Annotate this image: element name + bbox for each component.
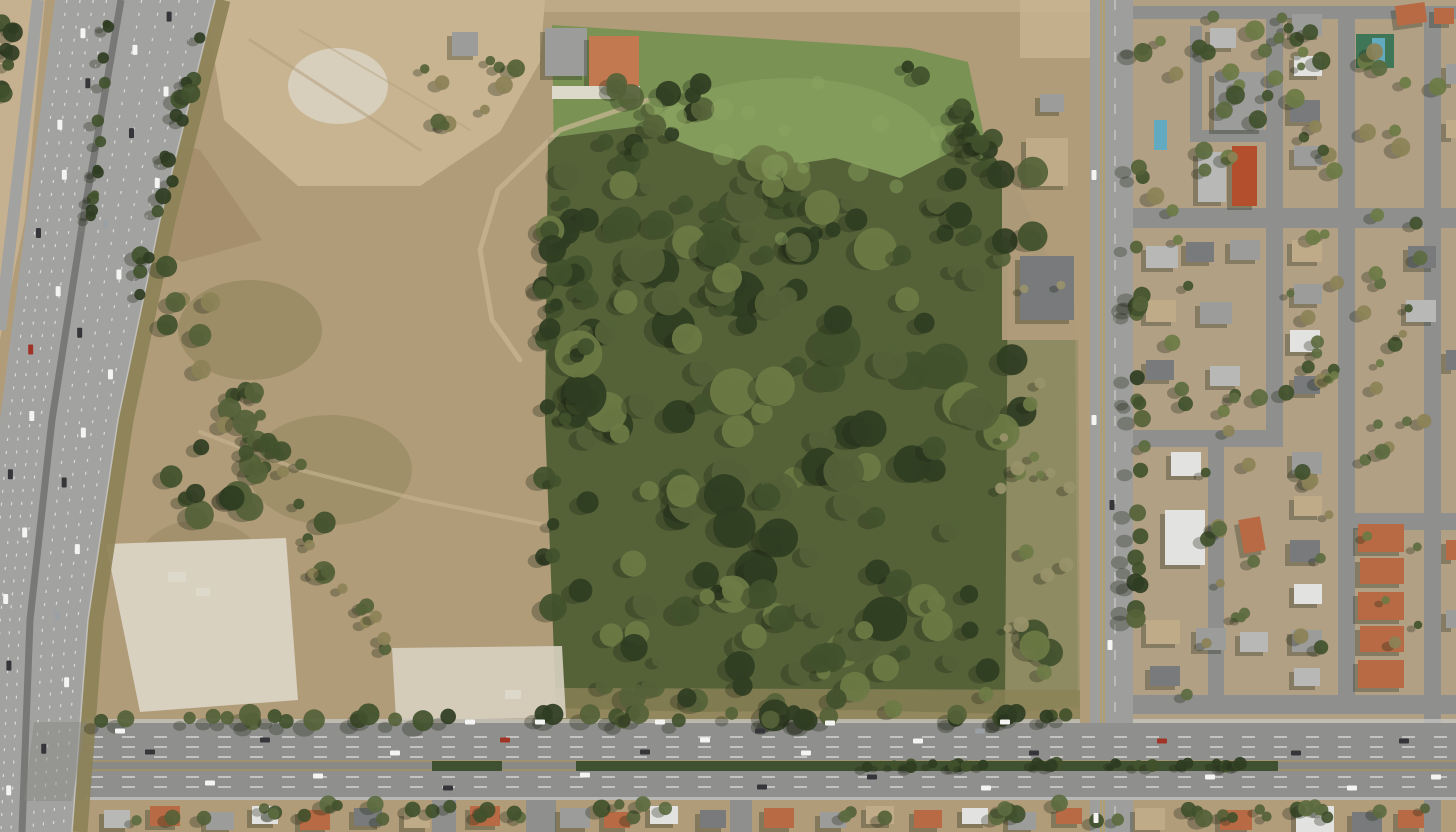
building bbox=[1171, 452, 1201, 476]
pale-pad-west bbox=[106, 538, 298, 712]
tree bbox=[1413, 542, 1422, 551]
tree bbox=[1293, 628, 1308, 643]
tree bbox=[358, 703, 380, 725]
building bbox=[1154, 120, 1167, 150]
tree-shadow bbox=[1114, 247, 1128, 257]
freeway-vehicle bbox=[62, 170, 67, 180]
building bbox=[1210, 366, 1240, 386]
boulevard-vehicle bbox=[1431, 775, 1441, 780]
tree-shadow bbox=[1113, 377, 1129, 389]
tree bbox=[539, 318, 560, 339]
tree bbox=[435, 75, 450, 90]
tree bbox=[1174, 382, 1189, 397]
tree bbox=[824, 305, 852, 333]
building bbox=[1210, 28, 1236, 48]
tree bbox=[742, 624, 767, 649]
tree-shadow bbox=[1117, 417, 1135, 431]
grass-patch bbox=[930, 125, 947, 142]
grass-patch bbox=[797, 161, 810, 174]
building bbox=[1446, 350, 1456, 370]
tree bbox=[961, 621, 978, 638]
boulevard-vehicle bbox=[1205, 775, 1215, 780]
tree bbox=[98, 52, 109, 63]
tree bbox=[947, 705, 967, 725]
grass-patch bbox=[778, 124, 790, 136]
tree bbox=[259, 433, 277, 451]
tree bbox=[95, 136, 106, 147]
tree bbox=[1183, 281, 1193, 291]
tree bbox=[1056, 281, 1065, 290]
tree bbox=[706, 201, 726, 221]
building bbox=[1040, 94, 1064, 112]
boulevard-vehicle bbox=[115, 729, 125, 734]
tree bbox=[610, 424, 629, 443]
grass-patch bbox=[711, 98, 733, 120]
grass-patch bbox=[889, 179, 903, 193]
building bbox=[1294, 584, 1322, 604]
boulevard-vehicle bbox=[1347, 786, 1357, 791]
tree bbox=[939, 517, 963, 541]
tree bbox=[1399, 77, 1411, 89]
freeway-vehicle bbox=[108, 369, 113, 379]
tree bbox=[643, 114, 667, 138]
tree bbox=[1126, 609, 1146, 629]
tree bbox=[1059, 557, 1074, 572]
tree bbox=[564, 377, 591, 404]
tree bbox=[704, 474, 745, 515]
freeway-vehicle bbox=[8, 469, 13, 479]
tree bbox=[1110, 758, 1120, 768]
tree bbox=[1389, 125, 1401, 137]
boulevard-vehicle bbox=[640, 750, 650, 755]
building bbox=[1446, 540, 1456, 560]
tree bbox=[922, 437, 946, 461]
tree bbox=[1376, 359, 1384, 367]
tree bbox=[133, 265, 147, 279]
tree bbox=[911, 66, 930, 85]
tree bbox=[545, 548, 560, 563]
tree bbox=[878, 810, 893, 825]
tree bbox=[92, 167, 104, 179]
grass-patch bbox=[775, 232, 788, 245]
tree bbox=[722, 415, 754, 447]
tree bbox=[480, 105, 490, 115]
boulevard-vehicle bbox=[465, 720, 475, 725]
tree bbox=[1020, 285, 1029, 294]
tree bbox=[754, 483, 780, 509]
freeway-vehicle bbox=[3, 594, 8, 604]
tree bbox=[946, 202, 972, 228]
tree bbox=[914, 313, 935, 334]
boulevard-vehicle bbox=[1000, 720, 1010, 725]
freeway-vehicle bbox=[75, 544, 80, 554]
tree bbox=[1370, 381, 1383, 394]
tree bbox=[1262, 90, 1274, 102]
satellite-image bbox=[0, 0, 1456, 832]
tree bbox=[1234, 757, 1247, 770]
tree bbox=[219, 485, 244, 510]
tree bbox=[1132, 296, 1148, 312]
tree bbox=[755, 366, 795, 406]
tree bbox=[92, 114, 104, 126]
tree bbox=[1371, 208, 1384, 221]
tree bbox=[884, 700, 902, 718]
tree bbox=[987, 160, 1015, 188]
tree bbox=[1134, 410, 1151, 427]
tree bbox=[1011, 461, 1025, 475]
building bbox=[1230, 240, 1260, 260]
boulevard-vehicle bbox=[313, 774, 323, 779]
tree bbox=[962, 261, 992, 291]
tree bbox=[1020, 631, 1050, 661]
tree bbox=[1178, 396, 1193, 411]
tree bbox=[872, 344, 907, 379]
tree bbox=[865, 507, 885, 527]
boulevard-median-green bbox=[432, 761, 502, 771]
tree bbox=[577, 491, 599, 513]
tree bbox=[1019, 544, 1034, 559]
tree bbox=[978, 760, 988, 770]
tree bbox=[890, 760, 899, 769]
tree bbox=[166, 175, 178, 187]
building bbox=[1146, 620, 1180, 644]
tree bbox=[553, 157, 585, 189]
tree bbox=[367, 796, 384, 813]
freeway-vehicle bbox=[129, 128, 134, 138]
tree bbox=[186, 484, 205, 503]
boulevard-vehicle bbox=[1157, 739, 1167, 744]
tree bbox=[131, 815, 141, 825]
tree bbox=[1410, 217, 1423, 230]
tree bbox=[159, 151, 170, 162]
building bbox=[1240, 632, 1268, 652]
tree bbox=[1018, 221, 1048, 251]
building bbox=[1446, 120, 1456, 138]
avenue-vehicle bbox=[1092, 415, 1097, 425]
building bbox=[1186, 242, 1214, 262]
tree bbox=[652, 652, 666, 666]
tree bbox=[337, 583, 347, 593]
building bbox=[1294, 496, 1322, 516]
tree bbox=[431, 114, 447, 130]
building bbox=[764, 808, 794, 828]
tree bbox=[1314, 640, 1328, 654]
building bbox=[1146, 246, 1178, 268]
tree bbox=[1133, 396, 1147, 410]
boulevard-vehicle bbox=[1291, 751, 1301, 756]
tree bbox=[1298, 800, 1314, 816]
tree-shadow bbox=[82, 197, 91, 204]
tree bbox=[117, 710, 134, 727]
tree bbox=[944, 168, 966, 190]
tree bbox=[597, 134, 613, 150]
tree bbox=[443, 800, 456, 813]
tree bbox=[377, 632, 390, 645]
tree bbox=[103, 21, 115, 33]
building bbox=[1294, 284, 1322, 304]
tree bbox=[1330, 371, 1339, 380]
tree bbox=[1036, 760, 1046, 770]
tree bbox=[1371, 60, 1387, 76]
tree bbox=[962, 122, 976, 136]
tree bbox=[1130, 241, 1143, 254]
freeway-vehicle bbox=[81, 428, 86, 438]
tree bbox=[143, 252, 155, 264]
tree bbox=[355, 603, 367, 615]
tree bbox=[1391, 138, 1410, 157]
tree-shadow bbox=[173, 721, 186, 731]
grass-patch bbox=[811, 76, 824, 89]
tree bbox=[1414, 621, 1422, 629]
tree bbox=[165, 292, 185, 312]
tree bbox=[298, 809, 311, 822]
tree bbox=[805, 190, 840, 225]
freeway-vehicle bbox=[167, 12, 172, 22]
boulevard-vehicle bbox=[145, 750, 155, 755]
tree bbox=[303, 709, 325, 731]
tree-shadow bbox=[77, 218, 88, 226]
tree bbox=[997, 344, 1028, 375]
freeway-vehicle bbox=[57, 120, 62, 130]
tree bbox=[1207, 11, 1219, 23]
tree bbox=[539, 594, 567, 622]
tree bbox=[927, 594, 945, 612]
tree bbox=[1166, 204, 1178, 216]
tree bbox=[755, 288, 787, 320]
boulevard-vehicle bbox=[755, 729, 765, 734]
tree bbox=[1262, 811, 1272, 821]
tree bbox=[1357, 305, 1372, 320]
tree-shadow bbox=[1111, 556, 1128, 569]
tree-shadow bbox=[1290, 67, 1298, 73]
boulevard-vehicle bbox=[975, 729, 985, 734]
tree bbox=[507, 59, 525, 77]
tree bbox=[1176, 760, 1186, 770]
tree bbox=[1155, 36, 1166, 47]
tree bbox=[86, 211, 96, 221]
tree bbox=[1302, 360, 1315, 373]
tree bbox=[1404, 304, 1412, 312]
tree bbox=[1420, 803, 1430, 813]
tree bbox=[194, 32, 205, 43]
tree bbox=[559, 413, 572, 426]
tree bbox=[1247, 555, 1260, 568]
tree bbox=[1017, 157, 1048, 188]
tree bbox=[1227, 812, 1238, 823]
tree bbox=[620, 551, 646, 577]
tree bbox=[486, 56, 496, 66]
grass-patch bbox=[645, 98, 662, 115]
tree bbox=[1147, 187, 1165, 205]
tree bbox=[685, 87, 701, 103]
tree bbox=[789, 357, 807, 375]
tree bbox=[293, 499, 304, 510]
tree bbox=[786, 233, 811, 258]
tree bbox=[901, 61, 914, 74]
tree bbox=[239, 445, 254, 460]
tree bbox=[1059, 708, 1072, 721]
tree bbox=[1127, 549, 1143, 565]
tree bbox=[1226, 85, 1245, 104]
tree bbox=[1029, 452, 1039, 462]
tree bbox=[700, 589, 715, 604]
tree bbox=[855, 621, 873, 639]
tree bbox=[1036, 471, 1045, 480]
grass-patch bbox=[742, 106, 756, 120]
tree bbox=[412, 710, 433, 731]
tree-shadow bbox=[996, 629, 1005, 636]
tree bbox=[1132, 577, 1148, 593]
tree-shadow bbox=[1115, 166, 1132, 179]
freeway-vehicle bbox=[80, 28, 85, 38]
tree-shadow bbox=[1279, 294, 1287, 300]
tree bbox=[201, 292, 220, 311]
building bbox=[452, 32, 478, 56]
building bbox=[914, 810, 942, 828]
tree bbox=[1312, 348, 1323, 359]
grass-patch bbox=[664, 106, 687, 129]
tree bbox=[862, 761, 873, 772]
tree bbox=[1251, 389, 1268, 406]
tree bbox=[1222, 63, 1239, 80]
tree bbox=[895, 287, 919, 311]
tree bbox=[606, 79, 626, 99]
sidewalk bbox=[85, 797, 1456, 800]
sidewalk bbox=[1133, 719, 1456, 723]
tree-shadow bbox=[1116, 303, 1133, 316]
tree bbox=[979, 687, 994, 702]
tree bbox=[91, 190, 99, 198]
tree-shadow bbox=[1369, 364, 1378, 371]
tree bbox=[170, 109, 183, 122]
tree-shadow bbox=[1049, 718, 1063, 729]
tree bbox=[1216, 579, 1225, 588]
tree bbox=[960, 585, 978, 603]
tree bbox=[693, 394, 711, 412]
tree bbox=[192, 360, 211, 379]
tree bbox=[268, 808, 279, 819]
tree bbox=[160, 465, 183, 488]
building bbox=[1146, 300, 1176, 322]
freeway-vehicle bbox=[85, 78, 90, 88]
tree bbox=[1399, 330, 1407, 338]
tree bbox=[1063, 481, 1075, 493]
tree bbox=[957, 388, 1000, 431]
tree bbox=[1045, 468, 1055, 478]
tree bbox=[799, 541, 825, 567]
boulevard-vehicle bbox=[825, 721, 835, 726]
tree bbox=[1321, 811, 1333, 823]
tree bbox=[181, 84, 200, 103]
tree bbox=[233, 410, 258, 435]
tree bbox=[157, 314, 178, 335]
boulevard-vehicle bbox=[913, 739, 923, 744]
tree bbox=[1295, 464, 1311, 480]
tree bbox=[1181, 689, 1193, 701]
freeway-vehicle bbox=[29, 411, 34, 421]
tree bbox=[1132, 528, 1148, 544]
building bbox=[700, 810, 726, 828]
tree bbox=[388, 712, 402, 726]
building bbox=[1135, 808, 1165, 830]
screenshot-root bbox=[0, 0, 1456, 832]
boulevard-vehicle bbox=[867, 775, 877, 780]
tree bbox=[826, 688, 847, 709]
boulevard-vehicle bbox=[443, 786, 453, 791]
tree bbox=[1368, 266, 1382, 280]
tree bbox=[495, 76, 513, 94]
tree bbox=[1195, 810, 1213, 828]
tree bbox=[1283, 23, 1293, 33]
tree bbox=[640, 481, 659, 500]
tree bbox=[761, 711, 779, 729]
boulevard-vehicle bbox=[500, 738, 510, 743]
tree bbox=[183, 712, 195, 724]
building bbox=[1150, 666, 1180, 686]
boulevard-vehicle bbox=[580, 773, 590, 778]
tree bbox=[1040, 568, 1054, 582]
building bbox=[1146, 360, 1174, 380]
tree bbox=[1268, 70, 1284, 86]
tree bbox=[645, 210, 674, 239]
tree bbox=[953, 98, 972, 117]
tree bbox=[672, 713, 686, 727]
tree bbox=[808, 644, 837, 673]
tree bbox=[1320, 229, 1330, 239]
tree bbox=[928, 759, 937, 768]
tree bbox=[672, 323, 702, 353]
tree bbox=[1000, 433, 1008, 441]
tree bbox=[507, 806, 522, 821]
tree bbox=[189, 324, 212, 347]
tree bbox=[873, 655, 899, 681]
tree bbox=[1298, 47, 1309, 58]
tree bbox=[1249, 110, 1267, 128]
tree bbox=[768, 605, 795, 632]
grass-patch bbox=[713, 144, 734, 165]
tree bbox=[614, 290, 638, 314]
boulevard-vehicle bbox=[1399, 739, 1409, 744]
tree bbox=[279, 714, 294, 729]
tree bbox=[596, 677, 614, 695]
tree bbox=[1417, 414, 1431, 428]
tree bbox=[885, 569, 912, 596]
tree bbox=[1305, 230, 1320, 245]
avenue-vehicle bbox=[1108, 640, 1113, 650]
tree bbox=[1309, 120, 1322, 133]
tree bbox=[895, 645, 910, 660]
tree bbox=[1223, 425, 1235, 437]
freeway-vehicle bbox=[54, 611, 59, 621]
boulevard-vehicle bbox=[390, 751, 400, 756]
tree bbox=[569, 579, 593, 603]
tree bbox=[580, 704, 600, 724]
tree bbox=[733, 676, 753, 696]
tree bbox=[376, 812, 389, 825]
tree bbox=[620, 238, 664, 282]
tree bbox=[277, 466, 289, 478]
tree bbox=[1311, 335, 1324, 348]
tree bbox=[1300, 310, 1315, 325]
building bbox=[1446, 610, 1456, 628]
tree-shadow bbox=[1117, 469, 1133, 481]
tree bbox=[304, 540, 315, 551]
tree bbox=[1285, 89, 1304, 108]
tree bbox=[1302, 24, 1318, 40]
tree bbox=[614, 799, 624, 809]
tree bbox=[1273, 33, 1284, 44]
tree bbox=[1373, 804, 1387, 818]
